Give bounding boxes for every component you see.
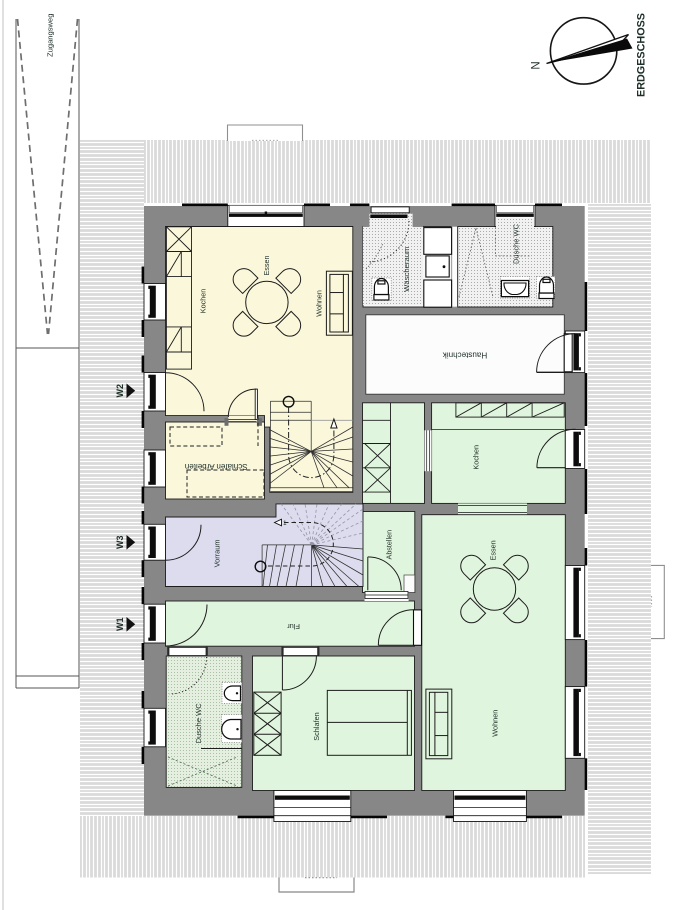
svg-text:Wohnen: Wohnen bbox=[315, 290, 324, 317]
svg-text:W3: W3 bbox=[115, 536, 125, 550]
svg-text:W1: W1 bbox=[115, 618, 125, 632]
svg-text:Abstellen: Abstellen bbox=[385, 530, 394, 560]
svg-text:Vorraum: Vorraum bbox=[213, 539, 222, 567]
svg-text:Schlafen: Schlafen bbox=[312, 712, 321, 740]
svg-text:Zugangsweg: Zugangsweg bbox=[46, 14, 55, 57]
svg-text:N: N bbox=[531, 61, 543, 69]
svg-text:W2: W2 bbox=[115, 384, 125, 398]
svg-text:Flur: Flur bbox=[287, 622, 300, 631]
svg-text:Kochen: Kochen bbox=[199, 289, 208, 313]
svg-text:Haustechnik: Haustechnik bbox=[442, 350, 487, 359]
svg-text:1: 1 bbox=[283, 520, 287, 527]
svg-text:Dusche WC: Dusche WC bbox=[512, 223, 521, 264]
svg-text:Dusche WC: Dusche WC bbox=[194, 703, 203, 744]
svg-text:Schlafen Arbeiten: Schlafen Arbeiten bbox=[185, 462, 248, 471]
svg-text:Wäscheraum: Wäscheraum bbox=[402, 247, 411, 292]
svg-text:Kochen: Kochen bbox=[472, 445, 481, 470]
svg-text:Essen: Essen bbox=[489, 540, 498, 560]
svg-text:Essen: Essen bbox=[262, 256, 271, 276]
svg-text:Wohnen: Wohnen bbox=[491, 710, 500, 737]
svg-text:ERDGESCHOSS: ERDGESCHOSS bbox=[636, 13, 648, 97]
